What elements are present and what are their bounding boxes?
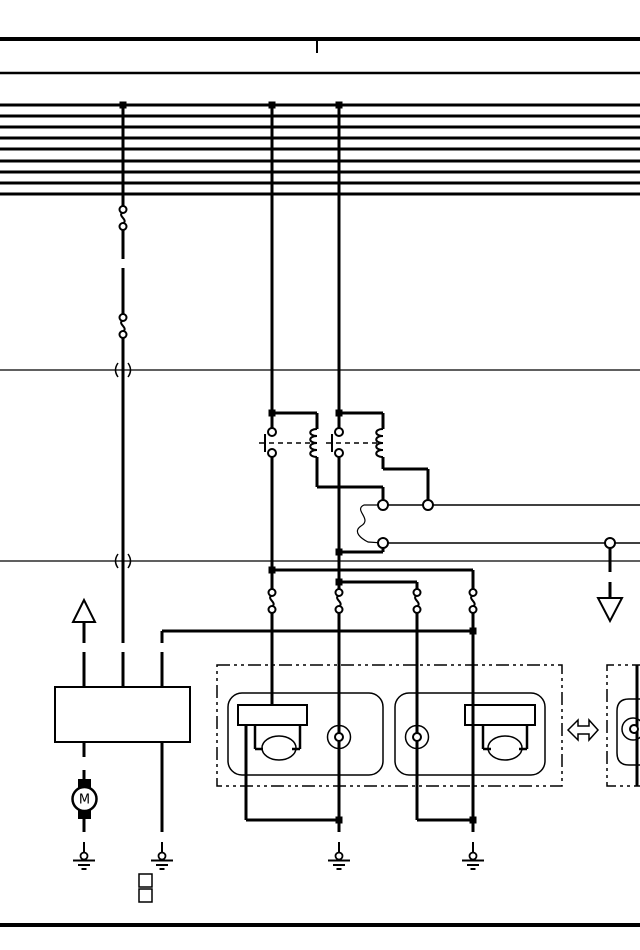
- relay-1: [259, 413, 383, 501]
- power-bus-lines: [0, 105, 640, 194]
- inline-connector-icon: [120, 206, 127, 230]
- headlamp-bulb-right: [465, 705, 535, 760]
- bulb-envelope: [488, 736, 522, 760]
- marker-lamp-wire: [414, 582, 474, 820]
- connector-circle: [378, 538, 388, 548]
- connector-square: [139, 874, 152, 887]
- connector-id-squares: [139, 874, 152, 902]
- connector-circle: [378, 500, 388, 510]
- relay-coil: [310, 429, 317, 457]
- bulb-filament: [335, 733, 343, 741]
- ground-symbols: [73, 842, 484, 869]
- left-right-arrow-icon: [568, 720, 598, 740]
- bulb-base: [465, 705, 535, 725]
- up-page-arrow-icon: [73, 600, 95, 622]
- far-right-assembly-box: [607, 665, 640, 786]
- connector-circle: [605, 538, 615, 548]
- ground-icon: [328, 842, 350, 869]
- bulb-envelope: [262, 736, 296, 760]
- relay-terminal: [268, 449, 276, 457]
- relay-terminal: [268, 428, 276, 436]
- relay-terminal: [335, 449, 343, 457]
- headlamp-assembly-box: [217, 665, 562, 820]
- wiring-diagram-page: M: [0, 0, 640, 950]
- bulb-filament: [630, 725, 638, 733]
- headlamp-bulb-left: [238, 705, 307, 820]
- connector-square: [139, 889, 152, 902]
- bulb-filament: [413, 733, 421, 741]
- ground-icon: [151, 842, 173, 869]
- section-dividers: [0, 370, 640, 561]
- junction-dots: [120, 102, 477, 824]
- supply-wire-1: [116, 105, 131, 687]
- inline-connector-icon: [336, 589, 343, 613]
- inline-connector-icon: [120, 314, 127, 338]
- down-page-arrow-icon: [598, 598, 622, 621]
- ground-icon: [462, 842, 484, 869]
- motor: M: [73, 779, 97, 832]
- relay-coil: [376, 429, 383, 457]
- inline-connector-icon: [414, 589, 421, 613]
- right-headlamp-wire: [162, 570, 477, 832]
- connector-circle: [423, 500, 433, 510]
- wiring-diagram-canvas: M: [0, 0, 640, 950]
- control-unit-box: [55, 687, 190, 742]
- harness-slack-curve: [357, 505, 383, 543]
- inline-connector-icon: [470, 589, 477, 613]
- ground-icon: [73, 842, 95, 869]
- inline-connector-icon: [269, 589, 276, 613]
- relay-terminal: [335, 428, 343, 436]
- motor-label: M: [79, 793, 90, 808]
- bulb-base: [238, 705, 307, 725]
